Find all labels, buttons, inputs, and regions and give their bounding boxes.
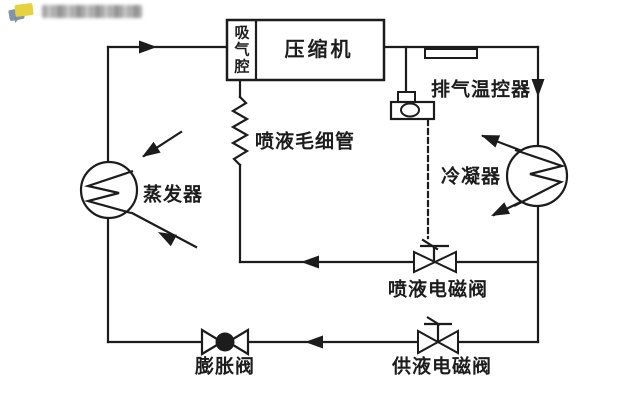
expansion-valve-symbol [202,330,248,354]
thermostat-dial [401,104,419,117]
evaporator-symbol [81,162,137,218]
arrow-evap-heat-bottom [155,226,177,246]
injection-capillary-label: 喷液毛细管 [255,133,355,152]
arrow-liquid-left [305,336,323,349]
discharge-thermostat-device [391,92,434,119]
condenser-label: 冷凝器 [441,168,501,187]
arrow-suction-right [139,41,157,54]
suction-chamber-label: 吸气腔 [233,25,248,76]
condenser-symbol [507,146,567,206]
discharge-sensor-bulb [425,49,477,58]
refrigeration-diagram-page: 吸气腔 压缩机 排气温控器 喷液毛细管 冷凝器 蒸发器 喷液电磁阀 膨胀阀 供液… [0,0,638,401]
evaporator-label: 蒸发器 [143,186,203,205]
arrow-cond-heat-bottom [488,202,510,222]
evaporator-heat-line-bottom [132,213,196,247]
arrow-injection-left [301,256,319,269]
capillary-zigzag [233,97,247,165]
injection-solenoid-valve-label: 喷液电磁阀 [388,281,488,300]
discharge-thermostat-label: 排气温控器 [431,81,531,100]
expansion-valve-ball [216,333,235,352]
arrow-evap-heat-top [138,142,160,163]
arrow-discharge-down [532,79,545,97]
injection-solenoid-valve-symbol [414,246,456,272]
arrow-cond-heat-top [479,129,500,148]
compressor-label: 压缩机 [285,40,354,60]
expansion-valve-label: 膨胀阀 [195,358,255,377]
thermostat-knob [398,92,415,102]
supply-solenoid-valve-label: 供液电磁阀 [392,358,492,377]
supply-solenoid-valve-symbol [418,317,458,353]
